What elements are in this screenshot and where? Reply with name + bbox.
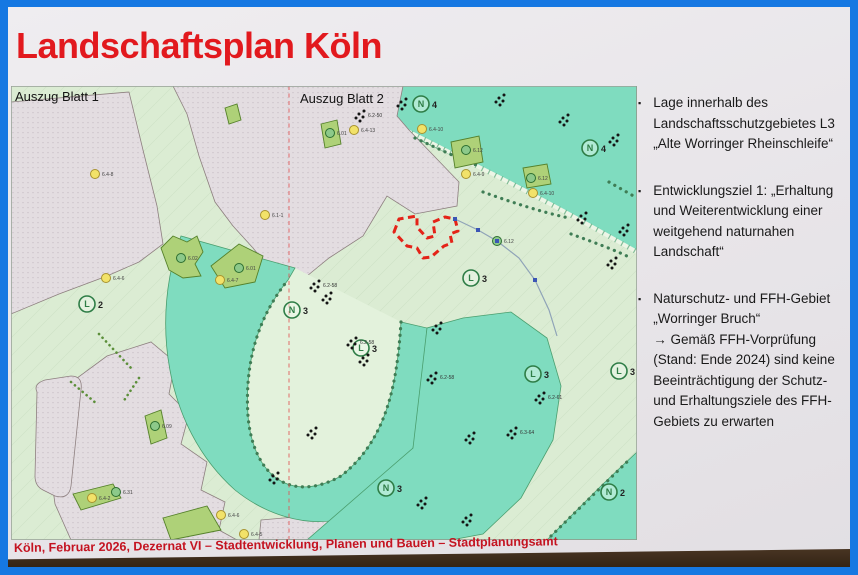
bullet-note: → Gemäß FFH-Vorprüfung (Stand: Ende 2024… (653, 330, 849, 433)
svg-text:N: N (418, 99, 425, 109)
svg-text:L: L (530, 369, 536, 379)
bullet-square-icon: ▪ (638, 93, 641, 114)
utility-point (533, 278, 537, 282)
svg-text:N: N (606, 487, 613, 497)
bullet-text: Lage innerhalb des Landschaftsschutzgebi… (653, 93, 849, 155)
svg-text:6.3-64: 6.3-64 (520, 430, 534, 436)
svg-text:3: 3 (303, 306, 308, 316)
utility-point (453, 217, 457, 221)
svg-text:4: 4 (432, 100, 437, 110)
utility-point (476, 228, 480, 232)
map-container: N4N4L2N3L3L3L3L3N3N26.126.126.126.016.02… (11, 86, 637, 540)
svg-text:6.4-2: 6.4-2 (99, 496, 111, 502)
svg-text:6.01: 6.01 (337, 131, 347, 137)
svg-text:6.1-1: 6.1-1 (272, 213, 284, 219)
svg-text:3: 3 (630, 367, 635, 377)
svg-text:6.12: 6.12 (538, 176, 548, 182)
sheet2-label: Auszug Blatt 2 (300, 91, 384, 106)
svg-text:N: N (383, 483, 390, 493)
svg-text:6.4-7: 6.4-7 (227, 278, 239, 284)
bullet-square-icon: ▪ (638, 181, 641, 202)
svg-text:6.4-10: 6.4-10 (540, 191, 554, 197)
bullet-item: ▪ Lage innerhalb des Landschaftsschutzge… (638, 93, 850, 155)
svg-text:2: 2 (620, 488, 625, 498)
landscape-map-svg: N4N4L2N3L3L3L3L3N3N26.126.126.126.016.02… (11, 86, 637, 540)
svg-text:6.4-13: 6.4-13 (361, 128, 375, 134)
svg-text:6.2-58: 6.2-58 (360, 340, 374, 346)
svg-text:3: 3 (482, 274, 487, 284)
svg-text:6.02: 6.02 (188, 256, 198, 262)
svg-text:3: 3 (397, 484, 402, 494)
slide: Landschaftsplan Köln (8, 7, 850, 567)
svg-text:6.2-61: 6.2-61 (548, 395, 562, 401)
bullet-text: Naturschutz- und FFH-Gebiet „Worringer B… (653, 289, 849, 330)
svg-text:6.12: 6.12 (504, 239, 514, 245)
svg-text:6.2-58: 6.2-58 (323, 283, 337, 289)
svg-text:6.31: 6.31 (123, 490, 133, 496)
sheet1-label: Auszug Blatt 1 (15, 89, 99, 104)
svg-text:L: L (468, 273, 474, 283)
bullet-item: ▪ Naturschutz- und FFH-Gebiet „Worringer… (638, 289, 850, 433)
svg-text:6.4-8: 6.4-8 (102, 172, 114, 178)
bullet-item: ▪ Entwicklungsziel 1: „Erhaltung und Wei… (638, 181, 850, 263)
svg-text:N: N (587, 143, 594, 153)
svg-text:6.4-10: 6.4-10 (429, 127, 443, 133)
svg-text:6.4-6: 6.4-6 (113, 276, 125, 282)
bullet-text: Entwicklungsziel 1: „Erhaltung und Weite… (653, 181, 849, 263)
svg-text:4: 4 (601, 144, 606, 154)
photo-frame: Landschaftsplan Köln (0, 0, 858, 575)
key-points-list: ▪ Lage innerhalb des Landschaftsschutzge… (638, 93, 850, 432)
svg-text:L: L (84, 299, 90, 309)
svg-text:6.12: 6.12 (473, 148, 483, 154)
svg-text:2: 2 (98, 300, 103, 310)
svg-text:6.2-58: 6.2-58 (440, 375, 454, 381)
svg-text:L: L (616, 366, 622, 376)
svg-text:6.01: 6.01 (246, 266, 256, 272)
svg-text:6.4-6: 6.4-6 (228, 513, 240, 519)
page-title: Landschaftsplan Köln (16, 25, 382, 67)
svg-text:3: 3 (544, 370, 549, 380)
bullet-square-icon: ▪ (638, 289, 641, 310)
svg-text:N: N (289, 305, 296, 315)
utility-point (495, 239, 499, 243)
svg-text:6.4-9: 6.4-9 (473, 172, 485, 178)
svg-text:6.09: 6.09 (162, 424, 172, 430)
svg-text:6.2-50: 6.2-50 (368, 113, 382, 119)
